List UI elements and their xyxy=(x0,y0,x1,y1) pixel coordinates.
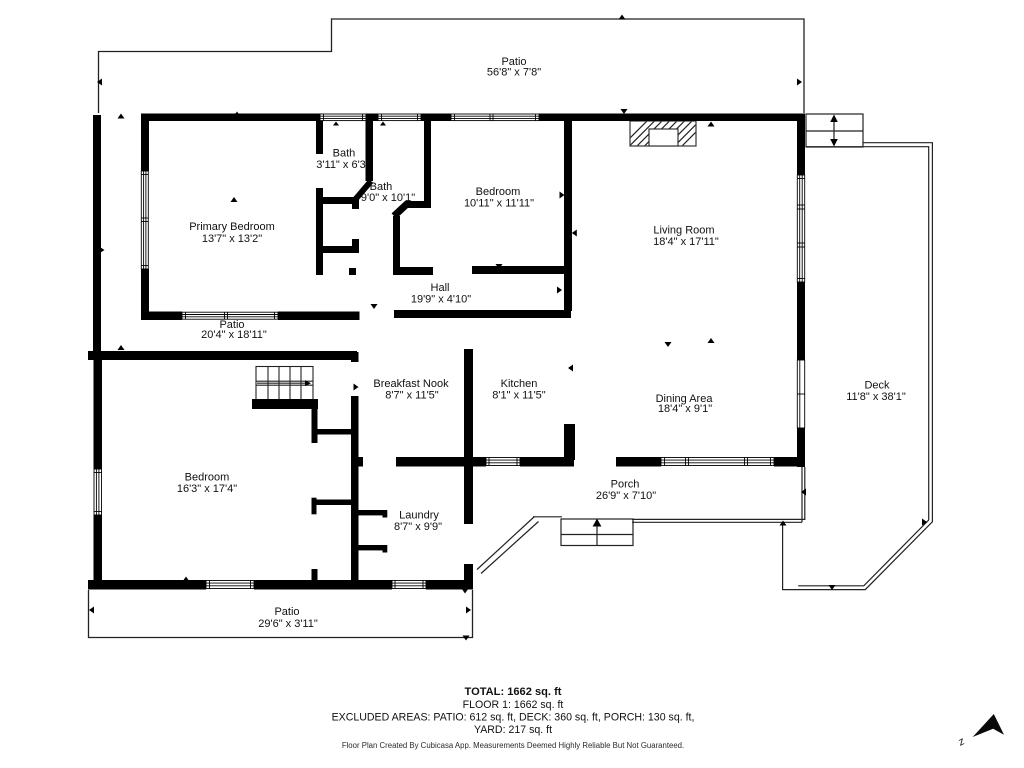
svg-text:TOTAL: 1662 sq. ft: TOTAL: 1662 sq. ft xyxy=(465,686,562,698)
svg-text:56'8" x 7'8": 56'8" x 7'8" xyxy=(487,67,541,79)
svg-text:Living Room: Living Room xyxy=(653,225,714,237)
svg-text:Primary Bedroom: Primary Bedroom xyxy=(189,221,275,233)
svg-text:Floor Plan Created By Cubicasa: Floor Plan Created By Cubicasa App. Meas… xyxy=(342,741,684,750)
svg-text:Bath: Bath xyxy=(333,148,356,160)
svg-text:Bedroom: Bedroom xyxy=(185,472,230,484)
svg-text:Kitchen: Kitchen xyxy=(501,378,538,390)
svg-text:18'4" x 9'1": 18'4" x 9'1" xyxy=(658,403,712,415)
svg-text:13'7" x 13'2": 13'7" x 13'2" xyxy=(202,233,262,245)
svg-text:16'3" x 17'4": 16'3" x 17'4" xyxy=(177,483,237,495)
svg-text:11'8" x 38'1": 11'8" x 38'1" xyxy=(846,391,906,403)
svg-text:EXCLUDED AREAS: PATIO: 612 sq.: EXCLUDED AREAS: PATIO: 612 sq. ft, DECK:… xyxy=(332,712,695,724)
svg-text:20'4" x 18'11": 20'4" x 18'11" xyxy=(201,329,267,341)
svg-text:8'1" x 11'5": 8'1" x 11'5" xyxy=(492,390,545,402)
svg-text:Patio: Patio xyxy=(274,606,299,618)
svg-text:Laundry: Laundry xyxy=(399,510,439,522)
svg-text:3'11" x 6'3": 3'11" x 6'3" xyxy=(316,159,369,171)
svg-text:10'11" x 11'11": 10'11" x 11'11" xyxy=(464,198,534,210)
svg-text:Porch: Porch xyxy=(611,479,640,491)
svg-text:Breakfast Nook: Breakfast Nook xyxy=(373,378,449,390)
svg-text:18'4" x 17'11": 18'4" x 17'11" xyxy=(653,236,719,248)
svg-text:YARD: 217 sq. ft: YARD: 217 sq. ft xyxy=(474,724,552,736)
svg-text:Hall: Hall xyxy=(431,282,450,294)
svg-text:8'7" x 9'9": 8'7" x 9'9" xyxy=(394,521,442,533)
svg-text:Deck: Deck xyxy=(864,380,890,392)
svg-text:FLOOR 1: 1662 sq. ft: FLOOR 1: 1662 sq. ft xyxy=(463,699,564,711)
svg-text:8'7" x 11'5": 8'7" x 11'5" xyxy=(385,390,438,402)
svg-text:9'0" x 10'1": 9'0" x 10'1" xyxy=(361,192,415,204)
svg-text:19'9" x 4'10": 19'9" x 4'10" xyxy=(411,294,471,306)
svg-text:29'6" x 3'11": 29'6" x 3'11" xyxy=(258,618,318,630)
svg-text:Bedroom: Bedroom xyxy=(476,186,521,198)
svg-text:26'9" x 7'10": 26'9" x 7'10" xyxy=(596,490,656,502)
